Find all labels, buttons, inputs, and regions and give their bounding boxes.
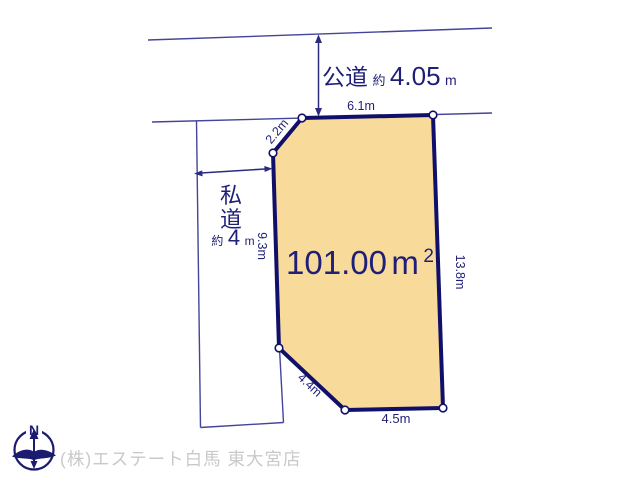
private-road-left-boundary — [197, 121, 201, 428]
vertex-dot — [269, 149, 277, 157]
private-road-bottom-boundary — [201, 423, 284, 428]
public-road-label: 公道 約 4.05 m — [322, 61, 457, 91]
land-plot-diagram: 公道 約 4.05 m 私 道 約 4 m 6.1m 2.2m 9.3m 13 — [0, 0, 640, 480]
company-watermark: (株)エステート白馬 東大宮店 — [60, 449, 302, 469]
area-label: 101.00 m 2 — [286, 244, 434, 281]
compass-tail — [31, 461, 38, 469]
private-road-right-boundary — [280, 349, 284, 423]
private-road-label: 私 道 約 4 m — [211, 183, 254, 250]
diagram-canvas: 公道 約 4.05 m 私 道 約 4 m 6.1m 2.2m 9.3m 13 — [0, 0, 640, 480]
vertex-dot — [429, 111, 437, 119]
vertex-dot — [341, 406, 349, 414]
dim-label-top: 6.1m — [347, 99, 375, 113]
svg-text:私: 私 — [220, 183, 242, 208]
private-road-width-label: 約 4 m — [211, 225, 254, 250]
vertex-dot — [439, 404, 447, 412]
dim-label-left: 9.3m — [255, 232, 269, 260]
public-road-width-arrow — [315, 35, 322, 117]
vertex-dot — [275, 344, 283, 352]
dim-label-right: 13.8m — [453, 255, 467, 290]
vertex-dot — [298, 114, 306, 122]
compass: N — [12, 422, 56, 470]
dim-label-bottom: 4.5m — [382, 411, 411, 426]
private-road-width-arrow — [194, 166, 273, 176]
